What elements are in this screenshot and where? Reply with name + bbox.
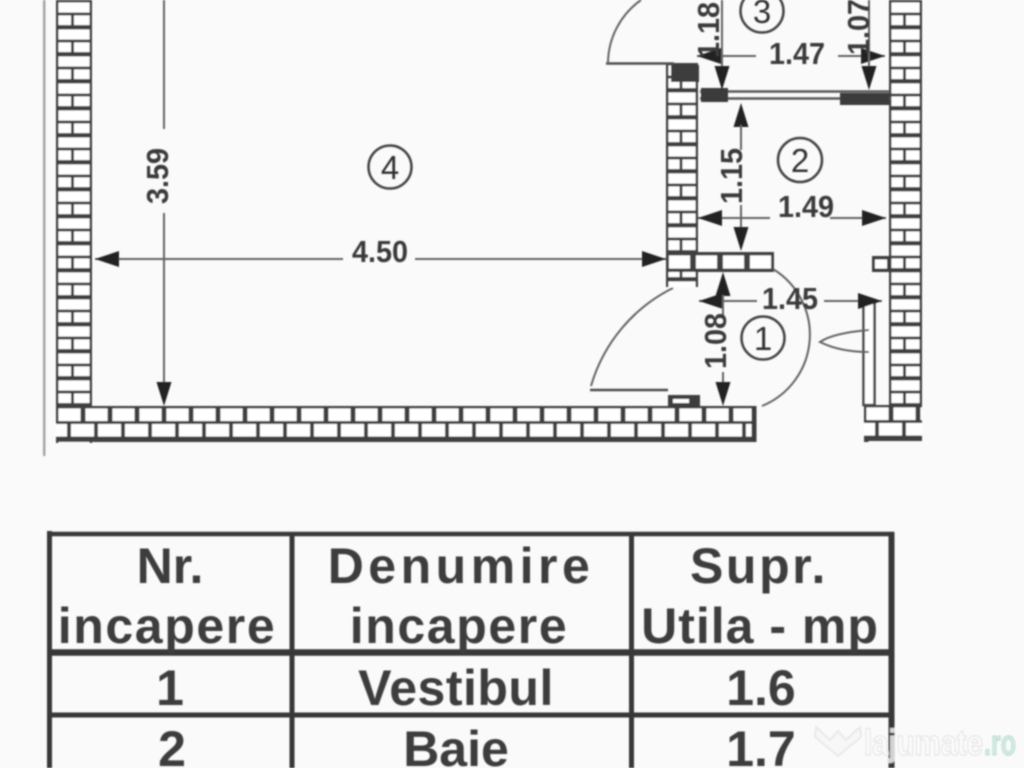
- svg-text:Vestibul: Vestibul: [358, 660, 554, 716]
- svg-text:1.18: 1.18: [691, 2, 726, 58]
- svg-text:incapere: incapere: [350, 598, 568, 654]
- svg-text:1: 1: [156, 660, 184, 716]
- svg-text:1.47: 1.47: [769, 36, 825, 71]
- svg-text:1: 1: [754, 320, 772, 357]
- svg-text:1.49: 1.49: [778, 189, 834, 224]
- svg-text:lajumate: lajumate: [864, 722, 983, 763]
- svg-text:2: 2: [791, 142, 809, 179]
- svg-text:1.7: 1.7: [726, 721, 796, 768]
- svg-text:Baie: Baie: [403, 721, 509, 768]
- svg-text:Nr.: Nr.: [137, 538, 204, 594]
- svg-text:1.07: 1.07: [841, 0, 876, 55]
- svg-text:4: 4: [381, 149, 399, 186]
- svg-text:3: 3: [753, 0, 771, 30]
- svg-text:1.6: 1.6: [726, 660, 796, 716]
- svg-text:incapere: incapere: [58, 598, 276, 654]
- svg-text:1.45: 1.45: [762, 281, 818, 316]
- svg-text:.ro: .ro: [984, 722, 1016, 763]
- svg-text:3.59: 3.59: [140, 148, 175, 204]
- svg-text:Utila - mp: Utila - mp: [641, 598, 879, 654]
- svg-text:1.08: 1.08: [698, 313, 733, 369]
- svg-text:Supr.: Supr.: [690, 538, 828, 594]
- svg-text:1.15: 1.15: [714, 148, 749, 204]
- svg-text:Denumire: Denumire: [328, 538, 595, 594]
- svg-text:4.50: 4.50: [352, 234, 408, 269]
- svg-text:2: 2: [158, 721, 186, 768]
